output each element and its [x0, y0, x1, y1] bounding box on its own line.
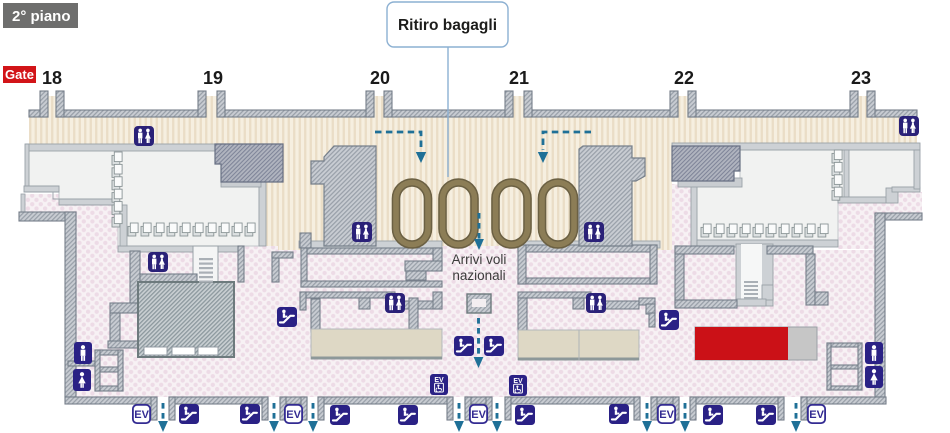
svg-text:Gate: Gate — [5, 67, 34, 82]
svg-text:Ritiro bagagli: Ritiro bagagli — [398, 17, 497, 34]
svg-text:nazionali: nazionali — [452, 268, 505, 283]
svg-text:18: 18 — [42, 68, 62, 88]
svg-text:21: 21 — [509, 68, 529, 88]
svg-text:23: 23 — [851, 68, 871, 88]
svg-text:Arrivi voli: Arrivi voli — [452, 252, 507, 267]
svg-text:19: 19 — [203, 68, 223, 88]
svg-text:2° piano: 2° piano — [12, 8, 71, 25]
svg-text:20: 20 — [370, 68, 390, 88]
svg-text:22: 22 — [674, 68, 694, 88]
